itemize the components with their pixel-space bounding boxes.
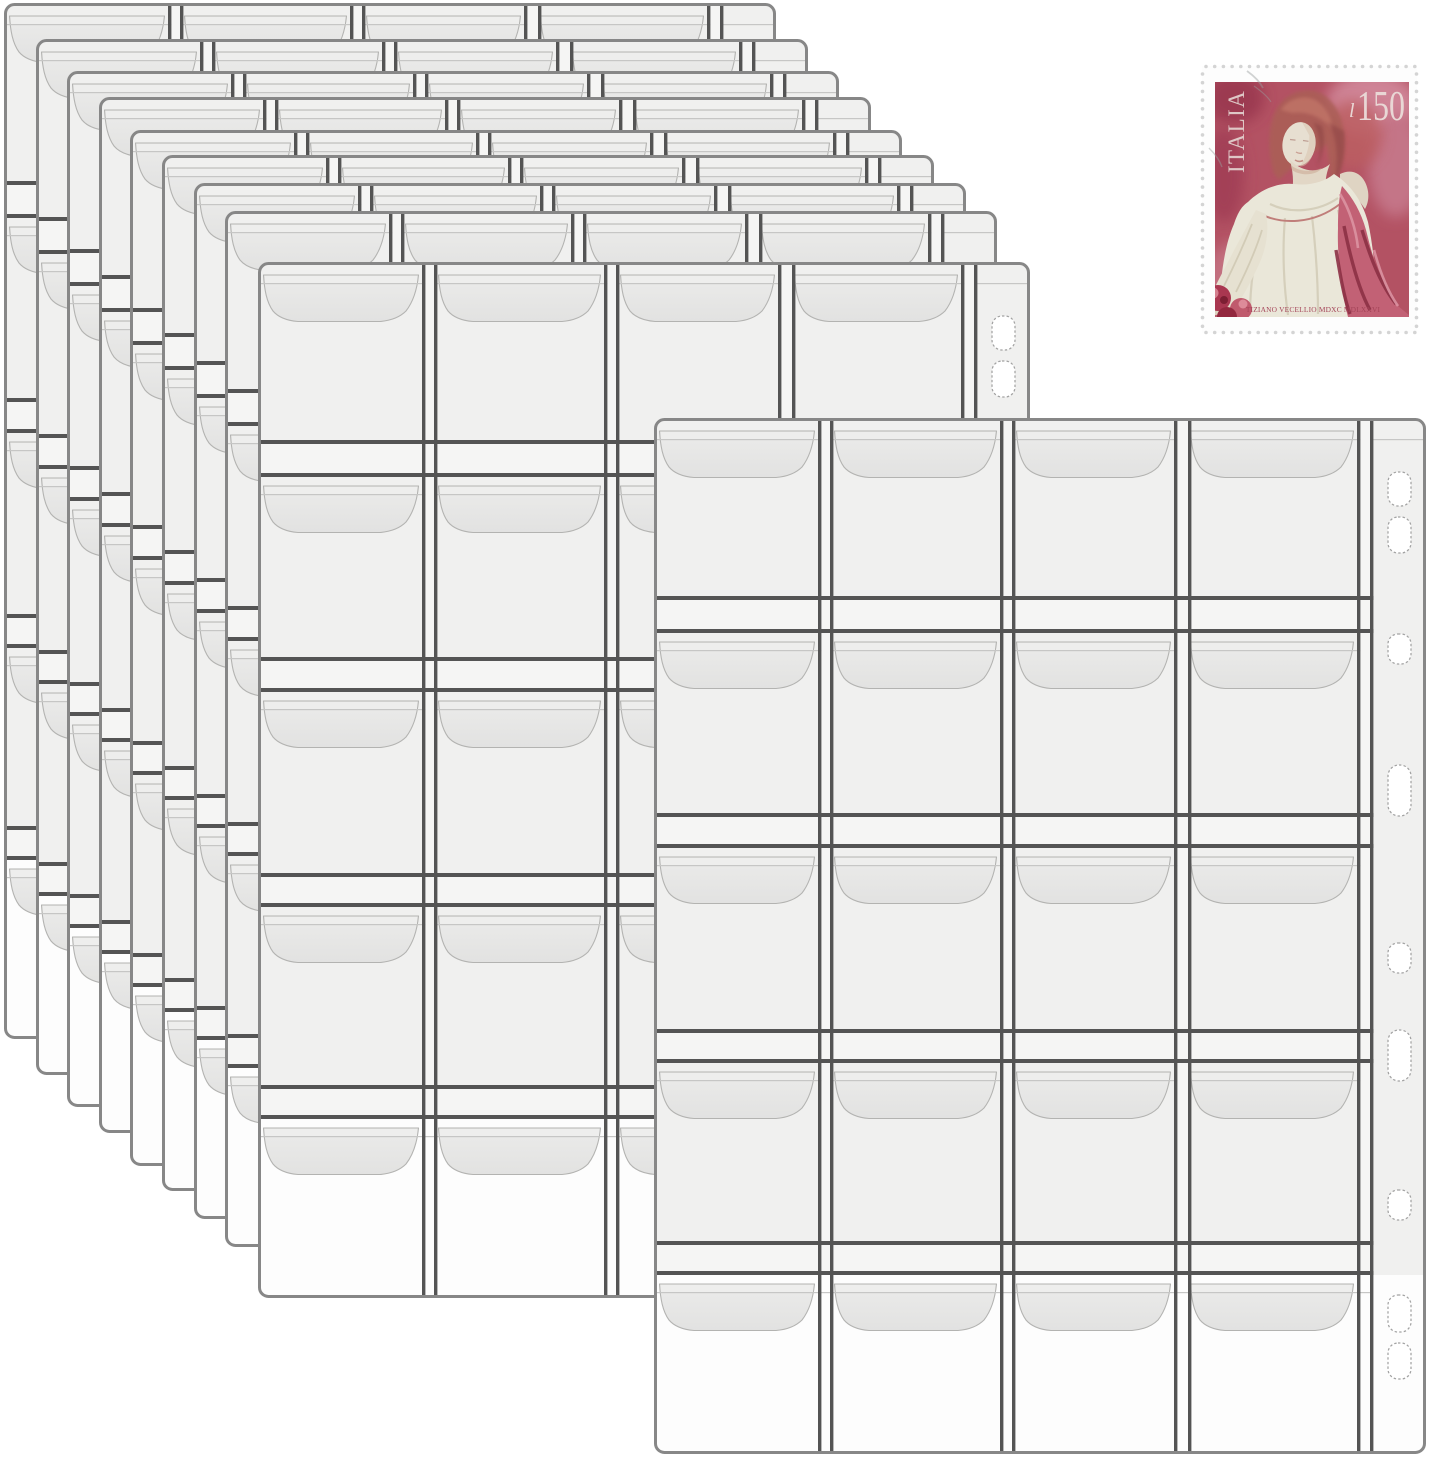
svg-text:TIZIANO VECELLIO MDXC MDLXXVI: TIZIANO VECELLIO MDXC MDLXXVI	[1246, 305, 1381, 314]
svg-text:l: l	[1349, 100, 1355, 122]
svg-text:ITALIA: ITALIA	[1224, 90, 1249, 173]
svg-text:150: 150	[1357, 84, 1405, 130]
